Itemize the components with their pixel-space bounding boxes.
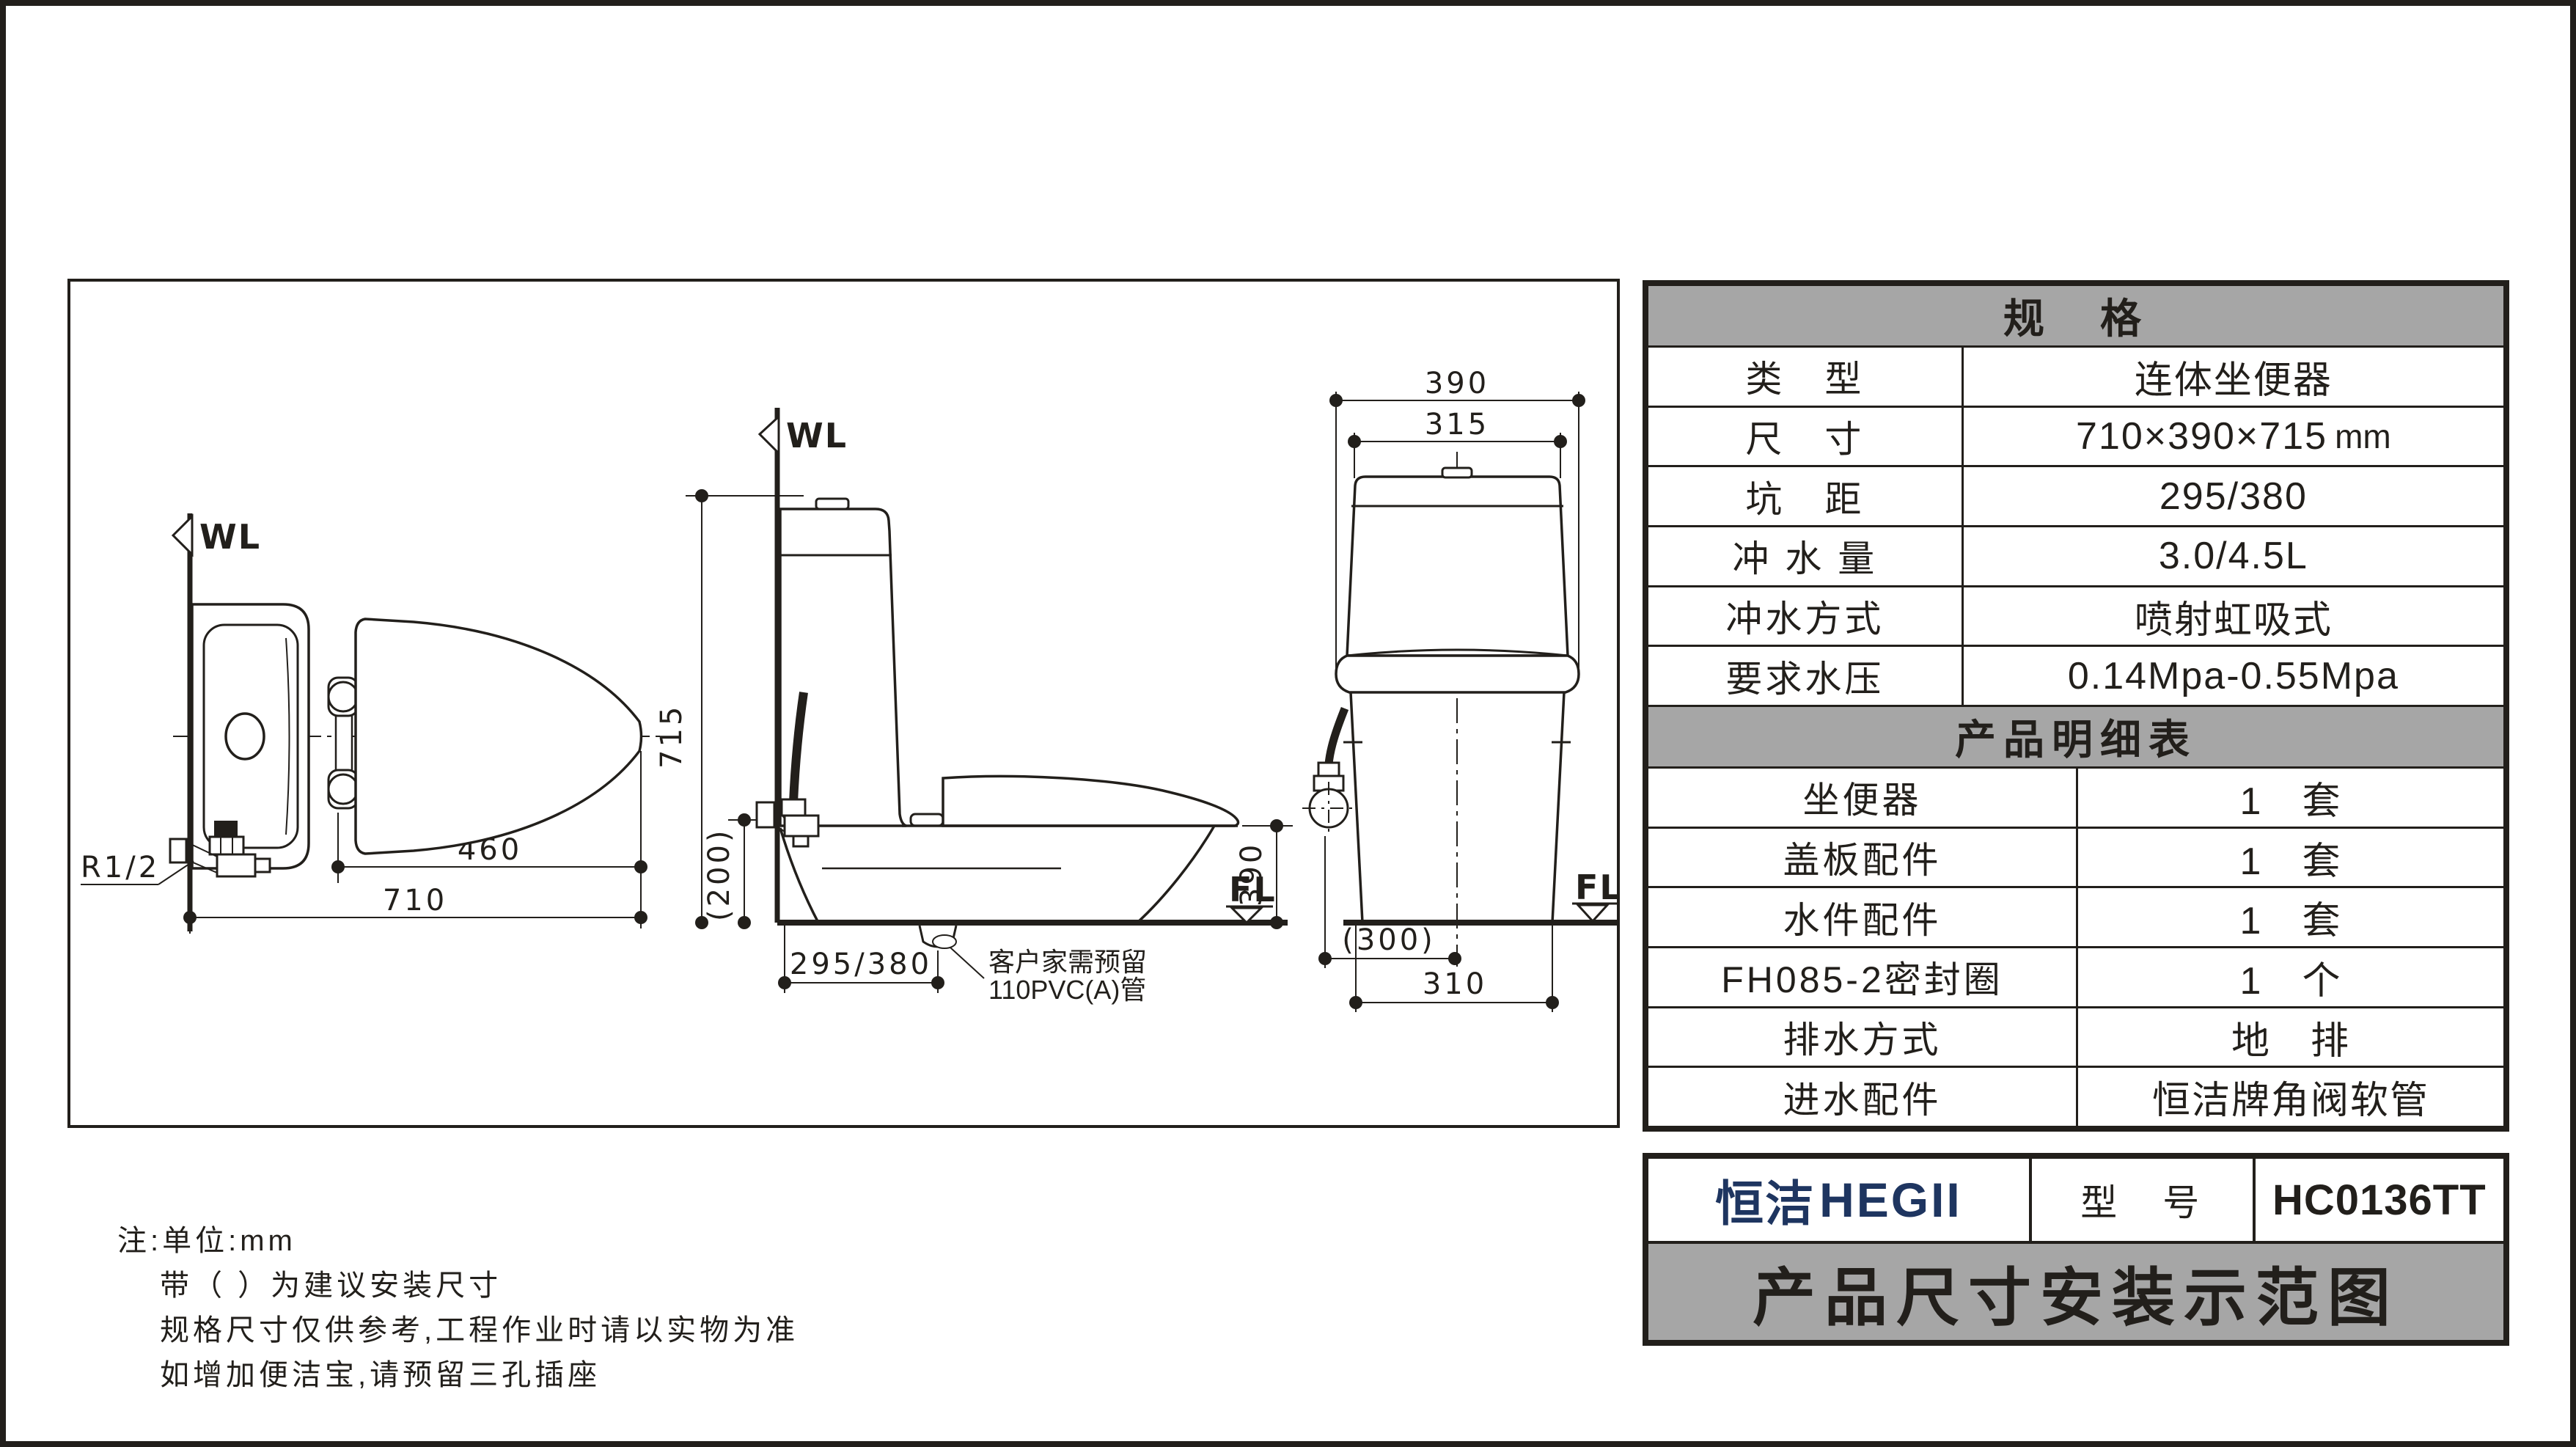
- spec-value-pressure: 0.14Mpa-0.55Mpa: [1964, 647, 2503, 705]
- dim-715: 715: [655, 704, 689, 769]
- detail-value-toilet: 1 套: [2078, 769, 2503, 827]
- spec-label-size: 尺 寸: [1648, 408, 1964, 466]
- note-line: 规格尺寸仅供参考,工程作业时请以实物为准: [117, 1308, 799, 1353]
- spec-value-roughin: 295/380: [1964, 467, 2503, 525]
- detail-label-cover: 盖板配件: [1648, 829, 2078, 887]
- detail-label-fittings: 水件配件: [1648, 888, 2078, 946]
- note-line: 带（ ）为建议安装尺寸: [117, 1264, 799, 1308]
- table-row: 盖板配件 1 套: [1648, 827, 2503, 887]
- thread-label: R1/2: [81, 851, 160, 884]
- detail-label-inlet: 进水配件: [1648, 1068, 2078, 1126]
- sheet-title-banner: 产品尺寸安装示范图: [1648, 1244, 2503, 1340]
- spec-value-flush-type: 喷射虹吸式: [1964, 587, 2503, 645]
- note-line: 注:单位:mm: [117, 1219, 799, 1264]
- spec-label-flush-type: 冲水方式: [1648, 587, 1964, 645]
- dim-390-height: 390: [1235, 842, 1269, 906]
- footnotes: 注:单位:mm 带（ ）为建议安装尺寸 规格尺寸仅供参考,工程作业时请以实物为准…: [117, 1219, 799, 1398]
- note-line: 如增加便洁宝,请预留三孔插座: [117, 1353, 799, 1398]
- floor-line-label: FL: [1575, 868, 1617, 907]
- top-view: 460 710 WL: [81, 513, 661, 934]
- detail-label-toilet: 坐便器: [1648, 769, 2078, 827]
- spec-label-pressure: 要求水压: [1648, 647, 1964, 705]
- table-row: 冲 水 量 3.0/4.5L: [1648, 525, 2503, 585]
- spec-table: 规 格 类 型 连体坐便器 尺 寸 710×390×715mm 坑 距 295/…: [1643, 280, 2509, 1132]
- drain-callout-line2: 110PVC(A)管: [988, 975, 1146, 1005]
- table-row: 冲水方式 喷射虹吸式: [1648, 585, 2503, 645]
- table-row: 排水方式 地 排: [1648, 1006, 2503, 1066]
- table-row: 尺 寸 710×390×715mm: [1648, 406, 2503, 466]
- dim-315: 315: [1425, 408, 1489, 442]
- detail-value-seal-ring: 1 个: [2078, 948, 2503, 1006]
- dim-390-width: 390: [1425, 367, 1489, 400]
- side-view: 715 (200) WL: [655, 408, 1293, 1005]
- spec-value-type: 连体坐便器: [1964, 348, 2503, 406]
- table-row: 进水配件 恒洁牌角阀软管: [1648, 1066, 2503, 1126]
- spec-label-type: 类 型: [1648, 348, 1964, 406]
- detail-value-drain-type: 地 排: [2078, 1008, 2503, 1066]
- brand-logo-cn: 恒洁: [1715, 1165, 1815, 1235]
- spec-label-flush-volume: 冲 水 量: [1648, 527, 1964, 585]
- detail-value-fittings: 1 套: [2078, 888, 2503, 946]
- drain-callout-line1: 客户家需预留: [988, 947, 1147, 977]
- dim-710: 710: [383, 884, 447, 917]
- wall-line-label: WL: [786, 416, 848, 455]
- brand-logo: 恒洁HEGII: [1648, 1159, 2032, 1241]
- dim-310: 310: [1423, 967, 1487, 1001]
- table-row: FH085-2密封圈 1 个: [1648, 946, 2503, 1006]
- spec-table-title: 规 格: [1648, 286, 2503, 345]
- detail-value-inlet: 恒洁牌角阀软管: [2078, 1068, 2503, 1126]
- table-row: 坐便器 1 套: [1648, 766, 2503, 827]
- table-row: 类 型 连体坐便器: [1648, 345, 2503, 406]
- dim-295-380: 295/380: [790, 948, 932, 981]
- product-installation-sheet: 460 710 WL: [0, 0, 2576, 1447]
- title-block: 恒洁HEGII 型 号 HC0136TT 产品尺寸安装示范图: [1643, 1153, 2509, 1346]
- hose-nut: [214, 821, 238, 837]
- spec-value-flush-volume: 3.0/4.5L: [1964, 527, 2503, 585]
- drawing-panel: 460 710 WL: [67, 279, 1620, 1128]
- detail-value-cover: 1 套: [2078, 829, 2503, 887]
- table-row: 水件配件 1 套: [1648, 886, 2503, 946]
- brand-logo-en: HEGII: [1819, 1172, 1962, 1228]
- model-label: 型 号: [2032, 1159, 2256, 1241]
- detail-table-title: 产品明细表: [1648, 705, 2503, 766]
- wall-line-label: WL: [199, 517, 261, 557]
- spec-label-roughin: 坑 距: [1648, 467, 1964, 525]
- dim-200: (200): [702, 827, 736, 921]
- size-unit: mm: [2335, 417, 2391, 456]
- front-view: 390 315: [1302, 367, 1617, 1012]
- table-row: 坑 距 295/380: [1648, 465, 2503, 525]
- model-number: HC0136TT: [2256, 1159, 2503, 1241]
- detail-label-drain-type: 排水方式: [1648, 1008, 2078, 1066]
- table-row: 要求水压 0.14Mpa-0.55Mpa: [1648, 645, 2503, 705]
- detail-label-seal-ring: FH085-2密封圈: [1648, 948, 2078, 1006]
- toilet-dimension-drawing: 460 710 WL: [70, 282, 1617, 1125]
- spec-value-size: 710×390×715mm: [1964, 408, 2503, 466]
